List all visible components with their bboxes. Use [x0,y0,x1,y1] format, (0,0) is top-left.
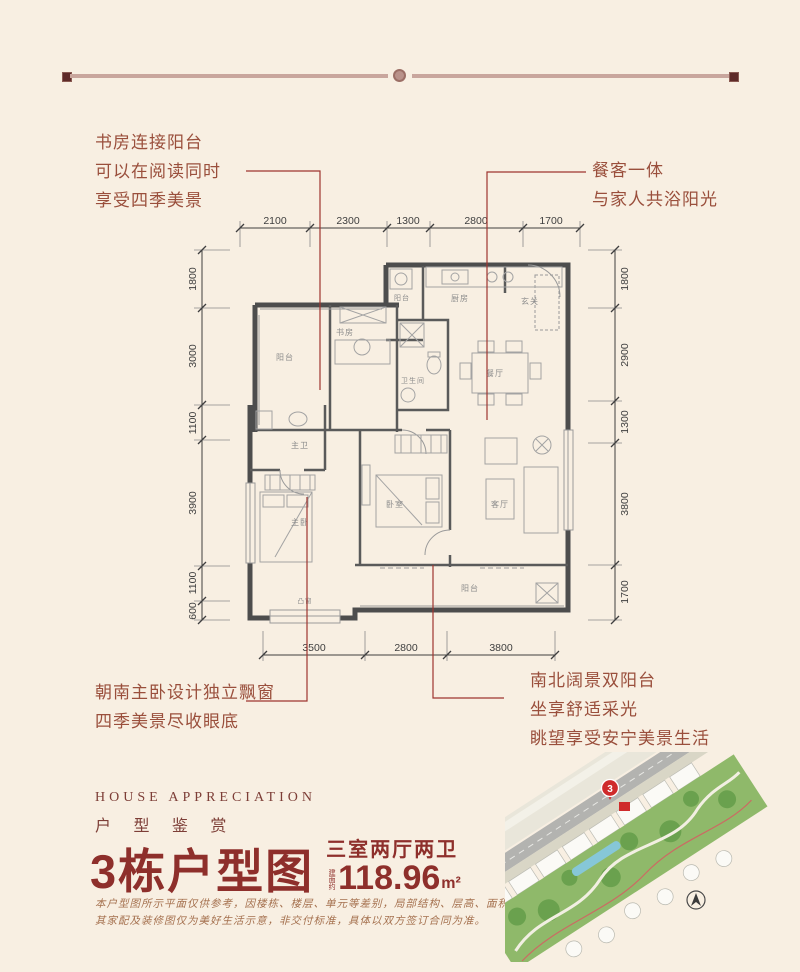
room-master-bath: 主卫 [291,440,309,450]
annotation-line: 朝南主卧设计独立飘窗 [95,678,275,707]
brand-block: HOUSE APPRECIATION 户 型 鉴 赏 [95,790,316,836]
dim-top-4: 2800 [464,215,488,227]
dim-left-1: 1800 [187,267,199,291]
rule-end-square-right [729,72,739,82]
annotation-double-balcony: 南北阔景双阳台 坐享舒适采光 眺望享受安宁美景生活 [530,666,710,753]
annotation-master-bedroom: 朝南主卧设计独立飘窗 四季美景尽收眼底 [95,678,275,736]
annotation-line: 餐客一体 [592,156,718,185]
compass-north-icon [687,891,705,909]
dim-right-4: 3800 [619,492,631,516]
dim-left-5: 1100 [187,572,199,595]
dim-right-2: 2900 [619,343,631,367]
annotation-line: 书房连接阳台 [95,128,221,157]
rule-bar-left [70,74,388,78]
room-living: 客厅 [491,499,509,509]
room-kitchen: 厨房 [451,293,469,303]
area-prefix: 建面约 [326,869,336,893]
siteplan-aerial [505,752,775,962]
annotation-line: 眺望享受安宁美景生活 [530,724,710,753]
room-master-bedroom: 主卧 [291,517,309,527]
dim-bottom-1: 3500 [302,642,326,654]
spec-block: 三室两厅两卫 建面约 118.96 m² [326,833,461,895]
rule-bar-right [412,74,730,78]
room-study: 书房 [336,327,354,337]
area-row: 建面约 118.96 m² [326,864,461,893]
furniture [256,267,562,603]
dim-left-3: 1100 [187,412,199,435]
title-row: 3栋户型图 三室两厅两卫 建面约 118.96 m² [90,833,461,895]
siteplan-thumbnail: 3 [505,752,775,962]
rule-center-ornament-icon [393,69,406,82]
room-dining: 餐厅 [486,369,504,378]
room-balcony-top: 阳台 [276,352,294,362]
poster-page: 书房连接阳台 可以在阅读同时 享受四季美景 餐客一体 与家人共浴阳光 朝南主卧设… [0,0,800,972]
area-unit: m² [441,875,461,893]
annotation-line: 坐享舒适采光 [530,695,710,724]
dim-right-3: 1300 [619,410,631,434]
dim-top-3: 1300 [396,215,420,227]
dim-right-5: 1700 [619,580,631,604]
layout-spec: 三室两厅两卫 [326,839,458,861]
room-bath: 卫生间 [401,376,425,385]
dim-left-4: 3900 [187,491,199,515]
windows [246,309,573,623]
room-foyer: 玄关 [521,296,539,306]
page-title: 3栋户型图 [90,848,314,895]
room-service-balcony: 阳台 [394,293,410,302]
eyebrow-en: HOUSE APPRECIATION [95,790,316,806]
dim-left-2: 3000 [187,344,199,368]
annotation-line: 四季美景尽收眼底 [95,707,275,736]
room-balcony-bottom: 阳台 [461,583,479,593]
room-bay-window: 凸窗 [298,596,313,605]
dim-top-1: 2100 [263,215,287,227]
dim-top-5: 1700 [539,215,563,227]
dim-lines [202,228,615,655]
dim-left-6: 600 [187,602,199,620]
dim-right-1: 1800 [619,267,631,291]
dim-bottom-3: 3800 [489,642,513,654]
area-value: 118.96 [338,864,440,893]
room-bedroom: 卧室 [386,499,404,509]
building-3-marker-label: 3 [607,784,613,795]
dim-bottom-2: 2800 [394,642,418,654]
floor-plan: 2100 2300 1300 2800 1700 1800 3000 1100 … [180,195,640,675]
dim-top-2: 2300 [336,215,360,227]
annotation-line: 可以在阅读同时 [95,157,221,186]
